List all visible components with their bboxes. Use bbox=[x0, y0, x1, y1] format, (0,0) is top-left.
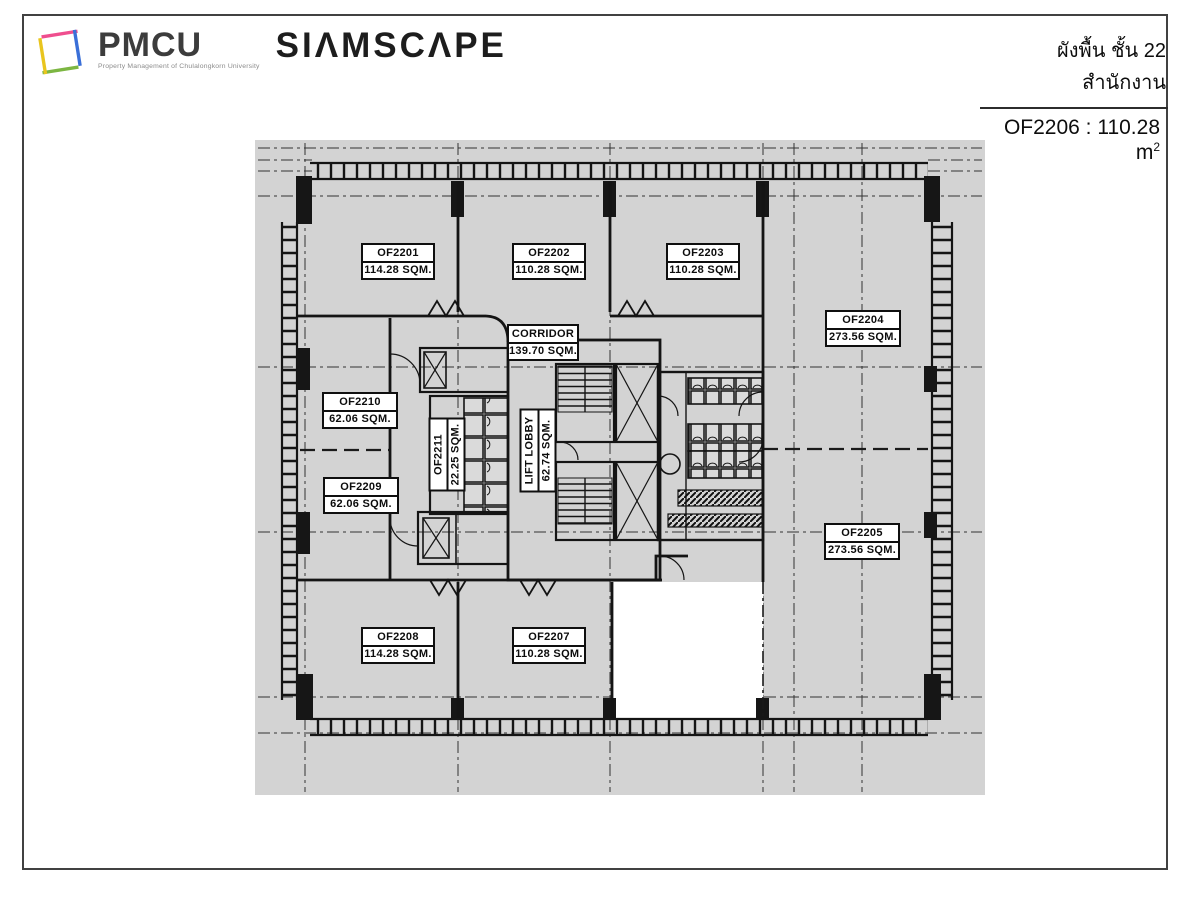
unit-area: 62.74 SQM. bbox=[540, 411, 555, 491]
floor-plan-drawing bbox=[0, 0, 1200, 900]
unit-area: 62.06 SQM. bbox=[325, 497, 397, 512]
unit-id: OF2201 bbox=[363, 245, 433, 263]
unit-id: OF2211 bbox=[431, 420, 449, 490]
unit-area: 273.56 SQM. bbox=[827, 330, 899, 345]
unit-id: OF2204 bbox=[827, 312, 899, 330]
unit-label-lift-lobby: LIFT LOBBY 62.74 SQM. bbox=[520, 409, 557, 493]
unit-area: 273.56 SQM. bbox=[826, 543, 898, 558]
unit-area: 110.28 SQM. bbox=[514, 263, 584, 278]
unit-id: OF2207 bbox=[514, 629, 584, 647]
unit-id: OF2205 bbox=[826, 525, 898, 543]
unit-label-of2209: OF2209 62.06 SQM. bbox=[323, 477, 399, 514]
unit-label-of2205: OF2205 273.56 SQM. bbox=[824, 523, 900, 560]
unit-area: 114.28 SQM. bbox=[363, 263, 433, 278]
page: PMCU Property Management of Chulalongkor… bbox=[0, 0, 1200, 900]
unit-label-of2201: OF2201 114.28 SQM. bbox=[361, 243, 435, 280]
unit-area: 139.70 SQM. bbox=[509, 344, 577, 359]
unit-label-of2204: OF2204 273.56 SQM. bbox=[825, 310, 901, 347]
unit-area: 62.06 SQM. bbox=[324, 412, 396, 427]
unit-of2206-highlight bbox=[612, 582, 763, 718]
unit-label-of2203: OF2203 110.28 SQM. bbox=[666, 243, 740, 280]
unit-area: 110.28 SQM. bbox=[514, 647, 584, 662]
unit-label-of2210: OF2210 62.06 SQM. bbox=[322, 392, 398, 429]
unit-id: OF2210 bbox=[324, 394, 396, 412]
unit-area: 110.28 SQM. bbox=[668, 263, 738, 278]
unit-label-of2207: OF2207 110.28 SQM. bbox=[512, 627, 586, 664]
unit-label-of2208: OF2208 114.28 SQM. bbox=[361, 627, 435, 664]
unit-id: OF2203 bbox=[668, 245, 738, 263]
unit-label-corridor: CORRIDOR 139.70 SQM. bbox=[507, 324, 579, 361]
unit-id: LIFT LOBBY bbox=[522, 411, 540, 491]
unit-id: OF2202 bbox=[514, 245, 584, 263]
unit-id: OF2208 bbox=[363, 629, 433, 647]
unit-area: 114.28 SQM. bbox=[363, 647, 433, 662]
unit-id: OF2209 bbox=[325, 479, 397, 497]
unit-label-of2202: OF2202 110.28 SQM. bbox=[512, 243, 586, 280]
unit-id: CORRIDOR bbox=[509, 326, 577, 344]
unit-label-of2211: OF2211 22.25 SQM. bbox=[429, 418, 466, 492]
unit-area: 22.25 SQM. bbox=[449, 420, 464, 490]
